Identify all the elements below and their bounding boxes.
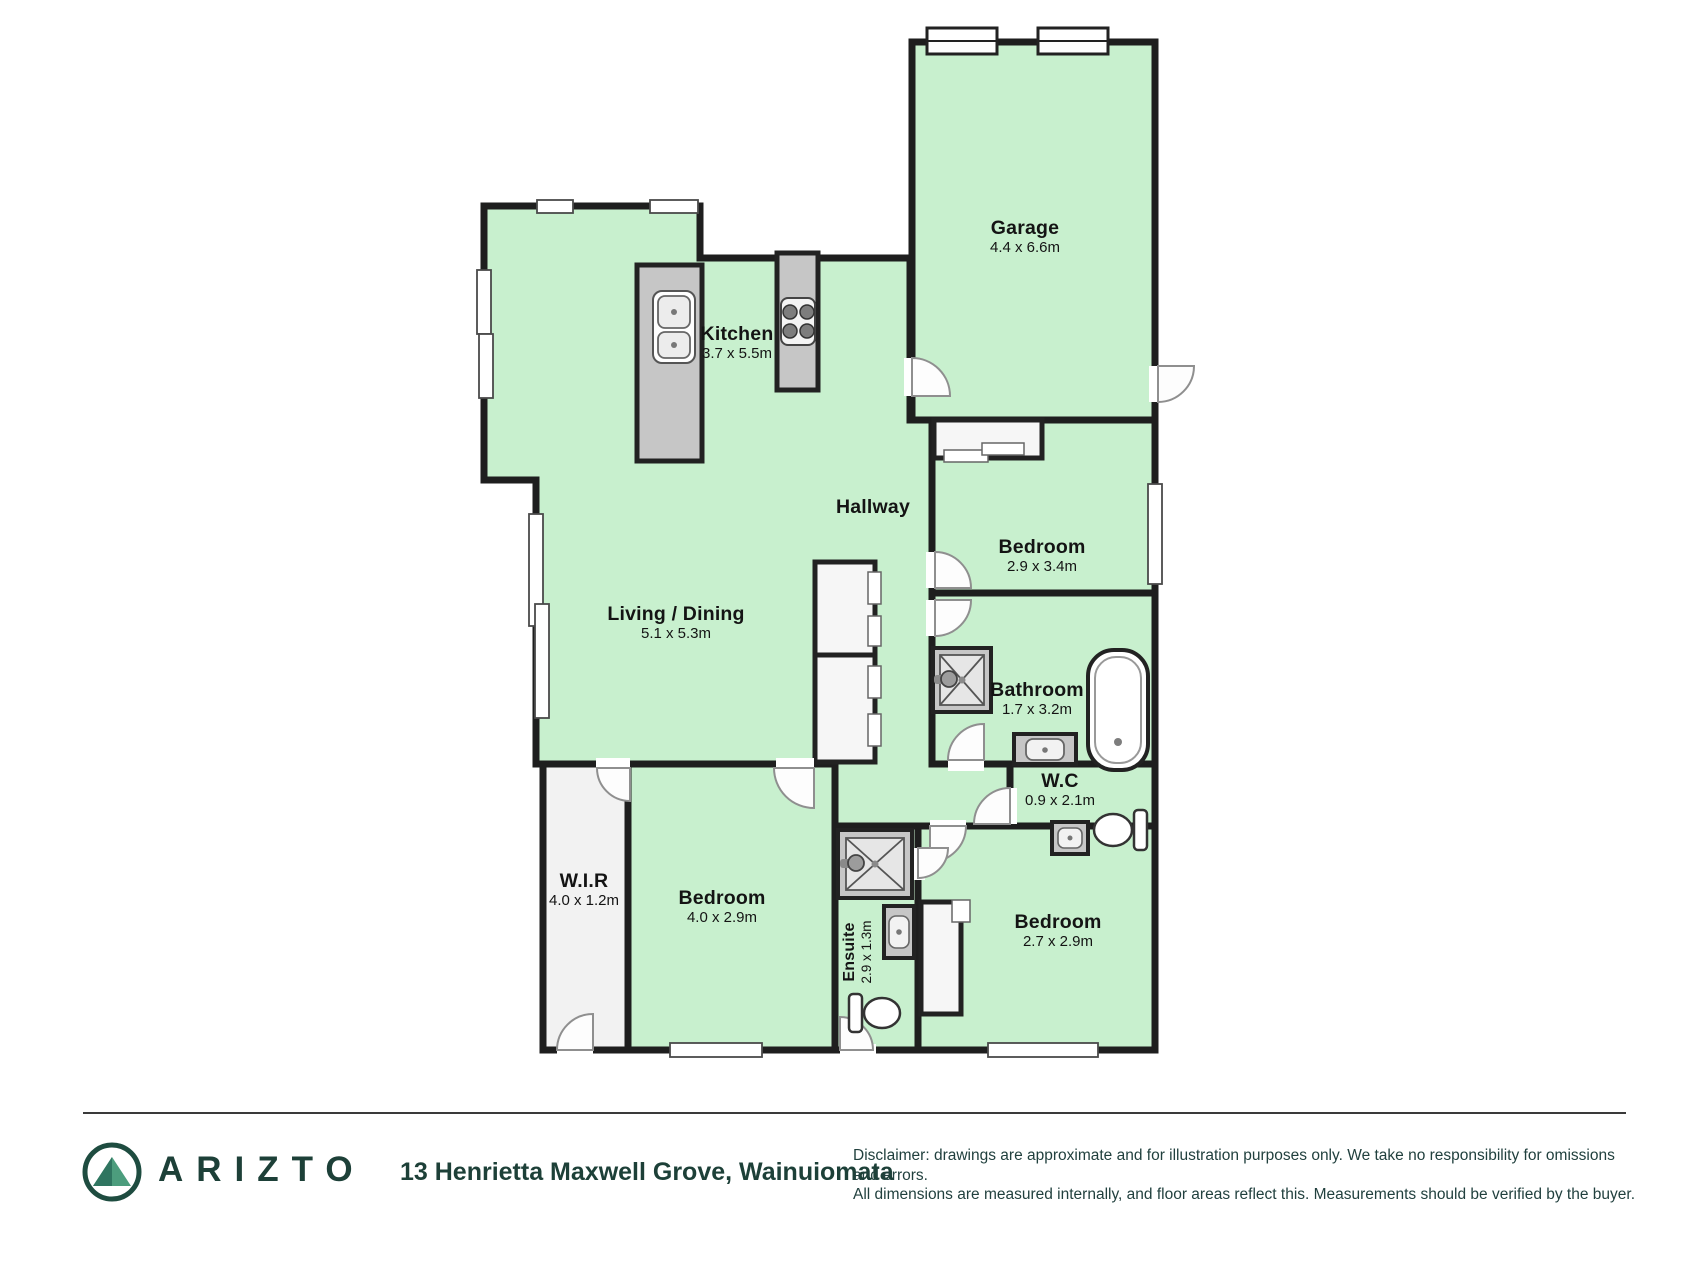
- window: [477, 270, 491, 334]
- disclaimer-line-1: Disclaimer: drawings are approximate and…: [853, 1146, 1643, 1185]
- room-label-bedroom-right: Bedroom 2.7 x 2.9m: [1015, 911, 1102, 951]
- room-dims: 2.9 x 1.3m: [859, 920, 875, 983]
- floorplan-page: Garage 4.4 x 6.6m Kitchen 3.7 x 5.5m Hal…: [0, 0, 1707, 1280]
- ensuite-shower: [838, 830, 912, 898]
- room-dims: 4.4 x 6.6m: [990, 239, 1060, 257]
- brand-name: ARIZTO: [158, 1150, 366, 1190]
- room-name: Ensuite: [841, 920, 859, 983]
- room-label-ensuite: Ensuite 2.9 x 1.3m: [841, 920, 875, 983]
- room-label-bathroom: Bathroom 1.7 x 3.2m: [990, 679, 1084, 719]
- wc-sink: [1052, 822, 1088, 854]
- window: [535, 604, 549, 718]
- room-name: W.I.R: [549, 870, 619, 892]
- closet-slider-tab: [982, 443, 1024, 455]
- room-dims: 0.9 x 2.1m: [1025, 792, 1095, 810]
- room-name: Hallway: [836, 496, 910, 518]
- footer-divider: [83, 1112, 1626, 1114]
- window: [670, 1043, 762, 1057]
- room-dims: 1.7 x 3.2m: [990, 701, 1084, 719]
- room-dims: 4.0 x 2.9m: [679, 909, 766, 927]
- room-name: Bedroom: [1015, 911, 1102, 933]
- closet-slider-tab: [868, 714, 881, 746]
- window: [479, 334, 493, 398]
- window: [988, 1043, 1098, 1057]
- room-label-wc: W.C 0.9 x 2.1m: [1025, 770, 1095, 810]
- disclaimer-line-2: All dimensions are measured internally, …: [853, 1185, 1643, 1205]
- room-label-wir: W.I.R 4.0 x 1.2m: [549, 870, 619, 910]
- room-dims: 2.7 x 2.9m: [1015, 933, 1102, 951]
- door-arc: [1158, 366, 1194, 402]
- closet-slider-tab: [868, 572, 881, 604]
- hall-closet-upper: [815, 562, 875, 655]
- closet-slider-tab: [868, 616, 881, 646]
- room-name: Kitchen: [701, 323, 774, 345]
- kitchen-island: [637, 265, 702, 461]
- ensuite-sink: [884, 906, 914, 958]
- window: [537, 200, 573, 213]
- window: [1148, 484, 1162, 584]
- room-name: Bathroom: [990, 679, 1084, 701]
- room-name: Garage: [990, 217, 1060, 239]
- room-dims: 5.1 x 5.3m: [607, 625, 744, 643]
- bathroom-sink: [1014, 734, 1076, 764]
- closet-slider-tab: [868, 666, 881, 698]
- stove: [777, 253, 818, 390]
- room-dims: 3.7 x 5.5m: [701, 345, 774, 363]
- arizto-logo: [81, 1141, 143, 1203]
- room-name: Living / Dining: [607, 603, 744, 625]
- hall-closet-lower: [815, 655, 875, 762]
- bathtub: [1088, 650, 1148, 770]
- room-dims: 2.9 x 3.4m: [999, 558, 1086, 576]
- room-label-garage: Garage 4.4 x 6.6m: [990, 217, 1060, 257]
- room-name: Bedroom: [999, 536, 1086, 558]
- disclaimer: Disclaimer: drawings are approximate and…: [853, 1146, 1643, 1205]
- property-address: 13 Henrietta Maxwell Grove, Wainuiomata: [400, 1158, 894, 1187]
- room-label-hallway: Hallway: [836, 496, 910, 518]
- wc-toilet: [1094, 810, 1147, 850]
- floorplan-drawing: [0, 0, 1707, 1280]
- room-label-kitchen: Kitchen 3.7 x 5.5m: [701, 323, 774, 363]
- room-name: Bedroom: [679, 887, 766, 909]
- room-dims: 4.0 x 1.2m: [549, 892, 619, 910]
- ensuite-toilet: [849, 994, 900, 1032]
- room-name: W.C: [1025, 770, 1095, 792]
- room-label-bedroom-left: Bedroom 4.0 x 2.9m: [679, 887, 766, 927]
- window: [650, 200, 698, 213]
- room-label-living-dining: Living / Dining 5.1 x 5.3m: [607, 603, 744, 643]
- room-label-bedroom-top: Bedroom 2.9 x 3.4m: [999, 536, 1086, 576]
- shower: [933, 648, 991, 712]
- closet-slider-tab: [952, 900, 970, 922]
